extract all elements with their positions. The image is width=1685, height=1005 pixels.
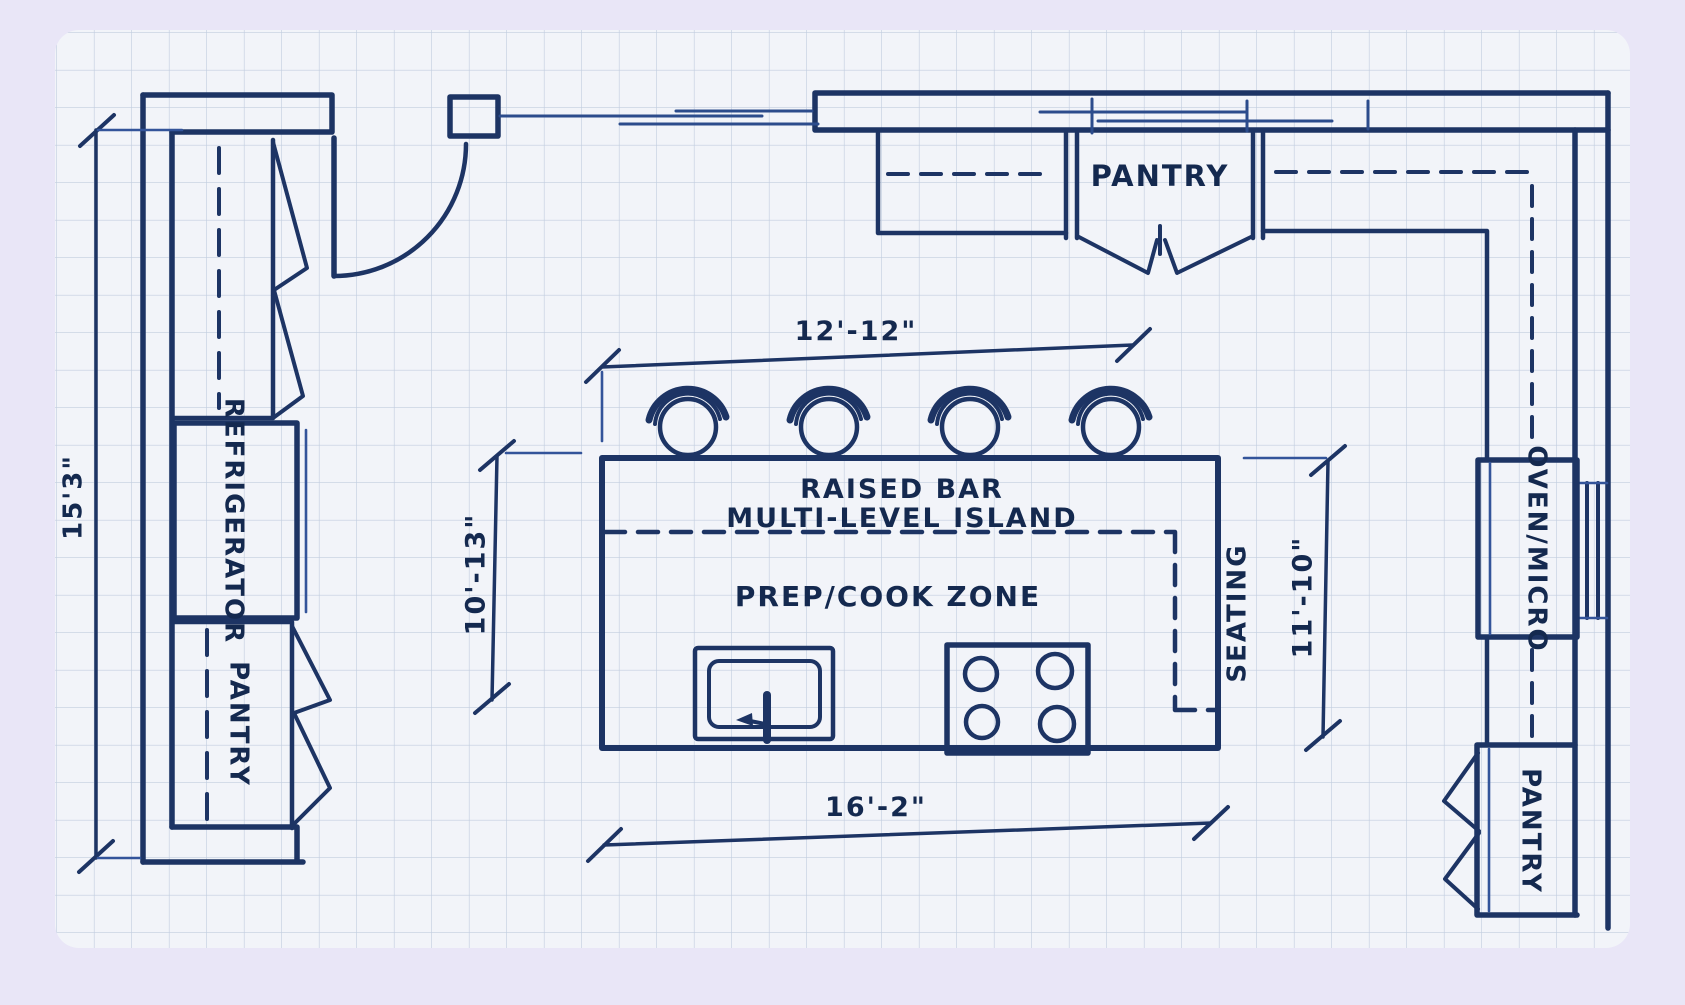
kitchen-floor-plan: PANTRY REFRIGERATOR PANTRY OVEN/MICRO PA… (0, 0, 1685, 1005)
island-left-dimension-label: 10'-13" (461, 513, 492, 636)
left-wall-dimension-label: 15'3" (59, 454, 89, 540)
pantry-left-label: PANTRY (224, 661, 254, 787)
multi-level-island-label: MULTI-LEVEL ISLAND (726, 503, 1077, 534)
seating-label: SEATING (1223, 543, 1253, 682)
refrigerator-label: REFRIGERATOR (219, 398, 249, 644)
island-top-dimension-label: 12'-12" (795, 316, 918, 347)
prep-cook-zone-label: PREP/COOK ZONE (735, 580, 1041, 613)
oven-micro-label: OVEN/MICRO (1522, 445, 1552, 652)
island-bottom-dimension-label: 16'-2" (825, 792, 927, 823)
raised-bar-label: RAISED BAR (800, 474, 1004, 505)
island-right-dimension-label: 11'-10" (1288, 536, 1319, 659)
pantry-top-label: PANTRY (1091, 159, 1230, 193)
pantry-bottom-label: PANTRY (1516, 768, 1546, 894)
